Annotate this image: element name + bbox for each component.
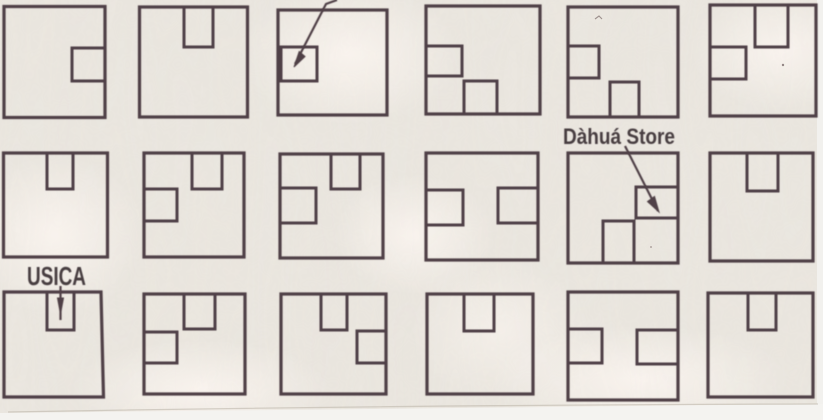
svg-text:Dàhuá Store: Dàhuá Store — [563, 124, 675, 149]
svg-text:USICA: USICA — [27, 263, 86, 291]
